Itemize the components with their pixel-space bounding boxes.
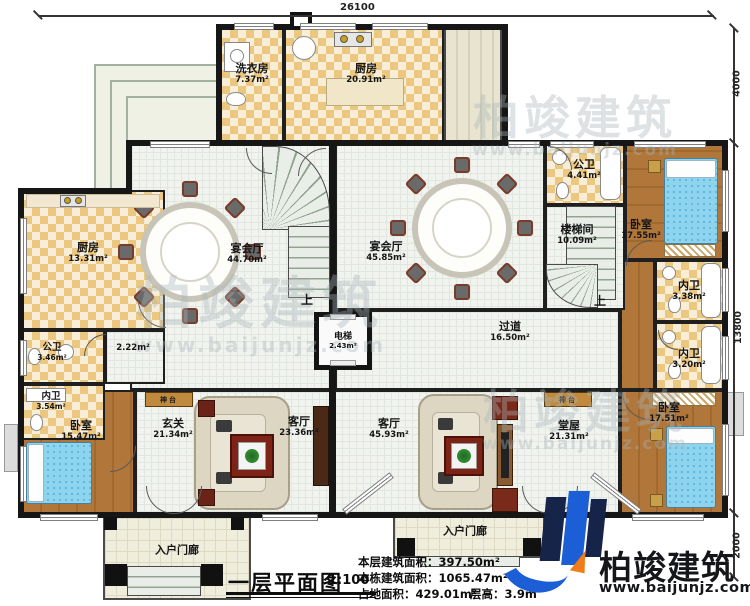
window bbox=[20, 218, 27, 294]
room-label-living-left: 客厅23.36m² bbox=[279, 416, 318, 438]
sink bbox=[662, 266, 676, 280]
window bbox=[722, 170, 729, 232]
stove-burner bbox=[340, 35, 348, 43]
side-table bbox=[198, 400, 215, 417]
stat-building-area: 本栋建筑面积：1065.47m² bbox=[358, 570, 508, 586]
nightstand bbox=[648, 160, 661, 173]
plant bbox=[245, 449, 259, 463]
room-label-stair-hall: 楼梯间10.09m² bbox=[557, 224, 596, 246]
window bbox=[40, 514, 98, 521]
altar-label: 神台 bbox=[160, 395, 178, 405]
window bbox=[20, 340, 27, 376]
laundry-sink bbox=[226, 92, 246, 106]
tv-screen bbox=[501, 432, 509, 478]
porch-pillar bbox=[201, 564, 223, 586]
room-label-bedroom-left: 卧室15.47m² bbox=[61, 420, 100, 442]
stairs-flight bbox=[288, 226, 330, 298]
stove-burner bbox=[75, 197, 82, 204]
room-label-hallway: 过道16.50m² bbox=[490, 321, 529, 343]
counter bbox=[26, 194, 160, 208]
nightstand bbox=[650, 494, 663, 507]
room-label-bedroom-top-right: 卧室17.55m² bbox=[621, 219, 660, 241]
room-label-kitchen-left: 厨房13.31m² bbox=[68, 242, 107, 264]
bathtub bbox=[600, 147, 621, 200]
room-hallway bbox=[335, 310, 620, 390]
window bbox=[372, 23, 428, 30]
room-label-kitchen-top: 厨房20.91m² bbox=[346, 63, 385, 85]
bed-pillow bbox=[666, 160, 716, 178]
altar-label: 神台 bbox=[559, 395, 577, 405]
room-label-hall-right: 堂屋21.31m² bbox=[549, 420, 588, 442]
dining-chair bbox=[182, 308, 198, 324]
room-label-bedroom-bottom-right: 卧室17.51m² bbox=[649, 402, 688, 424]
dimension-line-top bbox=[38, 15, 714, 17]
dimension-label-right-top: 4000 bbox=[732, 70, 743, 96]
throw-pillow bbox=[216, 420, 232, 432]
room-label-elevator: 电梯2.43m² bbox=[329, 332, 357, 350]
dimension-line-right bbox=[733, 28, 735, 578]
title-underline bbox=[226, 597, 376, 598]
porch-pillar bbox=[104, 517, 117, 530]
title-underline bbox=[226, 592, 376, 595]
porch-steps bbox=[127, 566, 201, 596]
dining-chair bbox=[517, 220, 533, 236]
wall-segment bbox=[126, 140, 132, 194]
dining-chair bbox=[454, 284, 470, 300]
room-label-inner-bath-2: 内卫3.20m² bbox=[672, 348, 706, 370]
room-small-hall bbox=[105, 330, 165, 384]
decor-column bbox=[492, 396, 518, 420]
room-label-banquet-left: 宴会厅44.70m² bbox=[227, 243, 266, 265]
nightstand bbox=[650, 428, 663, 441]
window bbox=[234, 23, 274, 30]
stat-land-area: 占地面积：429.01m² bbox=[358, 586, 477, 602]
floor-plan: 神台 神台 柏竣建筑 www.baijunjz.com 柏竣建筑 bbox=[0, 0, 750, 606]
corridor-wood bbox=[620, 260, 655, 390]
logo-mark-accent bbox=[570, 549, 589, 574]
kitchen-sink bbox=[292, 36, 316, 60]
dining-table-center bbox=[160, 222, 220, 282]
toilet bbox=[556, 182, 569, 199]
wall-segment bbox=[216, 24, 222, 146]
stairs-up-label: 上 bbox=[594, 295, 606, 309]
porch-pillar bbox=[105, 564, 127, 586]
room-label-small-hall: 2.22m² bbox=[116, 344, 150, 354]
porch-pillar bbox=[231, 517, 244, 530]
window bbox=[722, 424, 729, 496]
window bbox=[632, 514, 704, 521]
dining-table-center bbox=[432, 198, 492, 258]
dimension-label-right-middle: 13800 bbox=[733, 311, 744, 344]
window bbox=[300, 23, 356, 30]
elevator-door bbox=[330, 314, 356, 320]
room-label-foyer: 玄关21.34m² bbox=[153, 418, 192, 440]
room-label-public-bath-left: 公卫3.46m² bbox=[37, 343, 67, 363]
logo-url: www.baijunjz.com bbox=[599, 580, 750, 596]
elevator-door bbox=[330, 360, 356, 366]
altar-table: 神台 bbox=[145, 392, 193, 407]
dining-chair bbox=[390, 220, 406, 236]
toilet bbox=[30, 414, 43, 431]
stove-burner bbox=[356, 35, 364, 43]
room-label-banquet-right: 宴会厅45.85m² bbox=[366, 241, 405, 263]
room-label-inner-bath-1: 内卫3.38m² bbox=[672, 280, 706, 302]
room-label-inner-bath-left: 内卫3.54m² bbox=[36, 392, 66, 412]
window bbox=[150, 141, 210, 148]
wall-segment bbox=[502, 24, 508, 146]
room-label-public-bath-top: 公卫4.41m² bbox=[567, 159, 601, 181]
window bbox=[262, 514, 318, 521]
stairs-up-label: 上 bbox=[301, 294, 313, 308]
window bbox=[722, 268, 729, 312]
dimension-label-top: 26100 bbox=[340, 2, 375, 13]
bed-pillow bbox=[668, 428, 714, 444]
dining-chair bbox=[182, 181, 198, 197]
wardrobe bbox=[664, 244, 716, 257]
room-label-porch-right: 入户门廊 bbox=[443, 526, 487, 539]
decor-column bbox=[492, 488, 518, 512]
side-step bbox=[4, 424, 18, 472]
dining-chair bbox=[118, 244, 134, 260]
window bbox=[634, 141, 706, 148]
window bbox=[508, 141, 540, 148]
plant bbox=[457, 449, 471, 463]
stove-burner bbox=[64, 197, 71, 204]
wall-segment bbox=[18, 512, 728, 518]
window bbox=[722, 336, 729, 380]
throw-pillow bbox=[438, 418, 453, 430]
bed-pillow bbox=[28, 444, 44, 502]
stat-floor-area: 本层建筑面积：397.50m² bbox=[358, 554, 500, 570]
dining-chair bbox=[454, 157, 470, 173]
room-label-laundry: 洗衣房7.37m² bbox=[235, 63, 269, 85]
room-label-porch-left: 入户门廊 bbox=[155, 545, 199, 558]
altar-table: 神台 bbox=[544, 392, 592, 407]
room-label-living-right: 客厅45.93m² bbox=[369, 418, 408, 440]
top-porch bbox=[444, 28, 502, 143]
